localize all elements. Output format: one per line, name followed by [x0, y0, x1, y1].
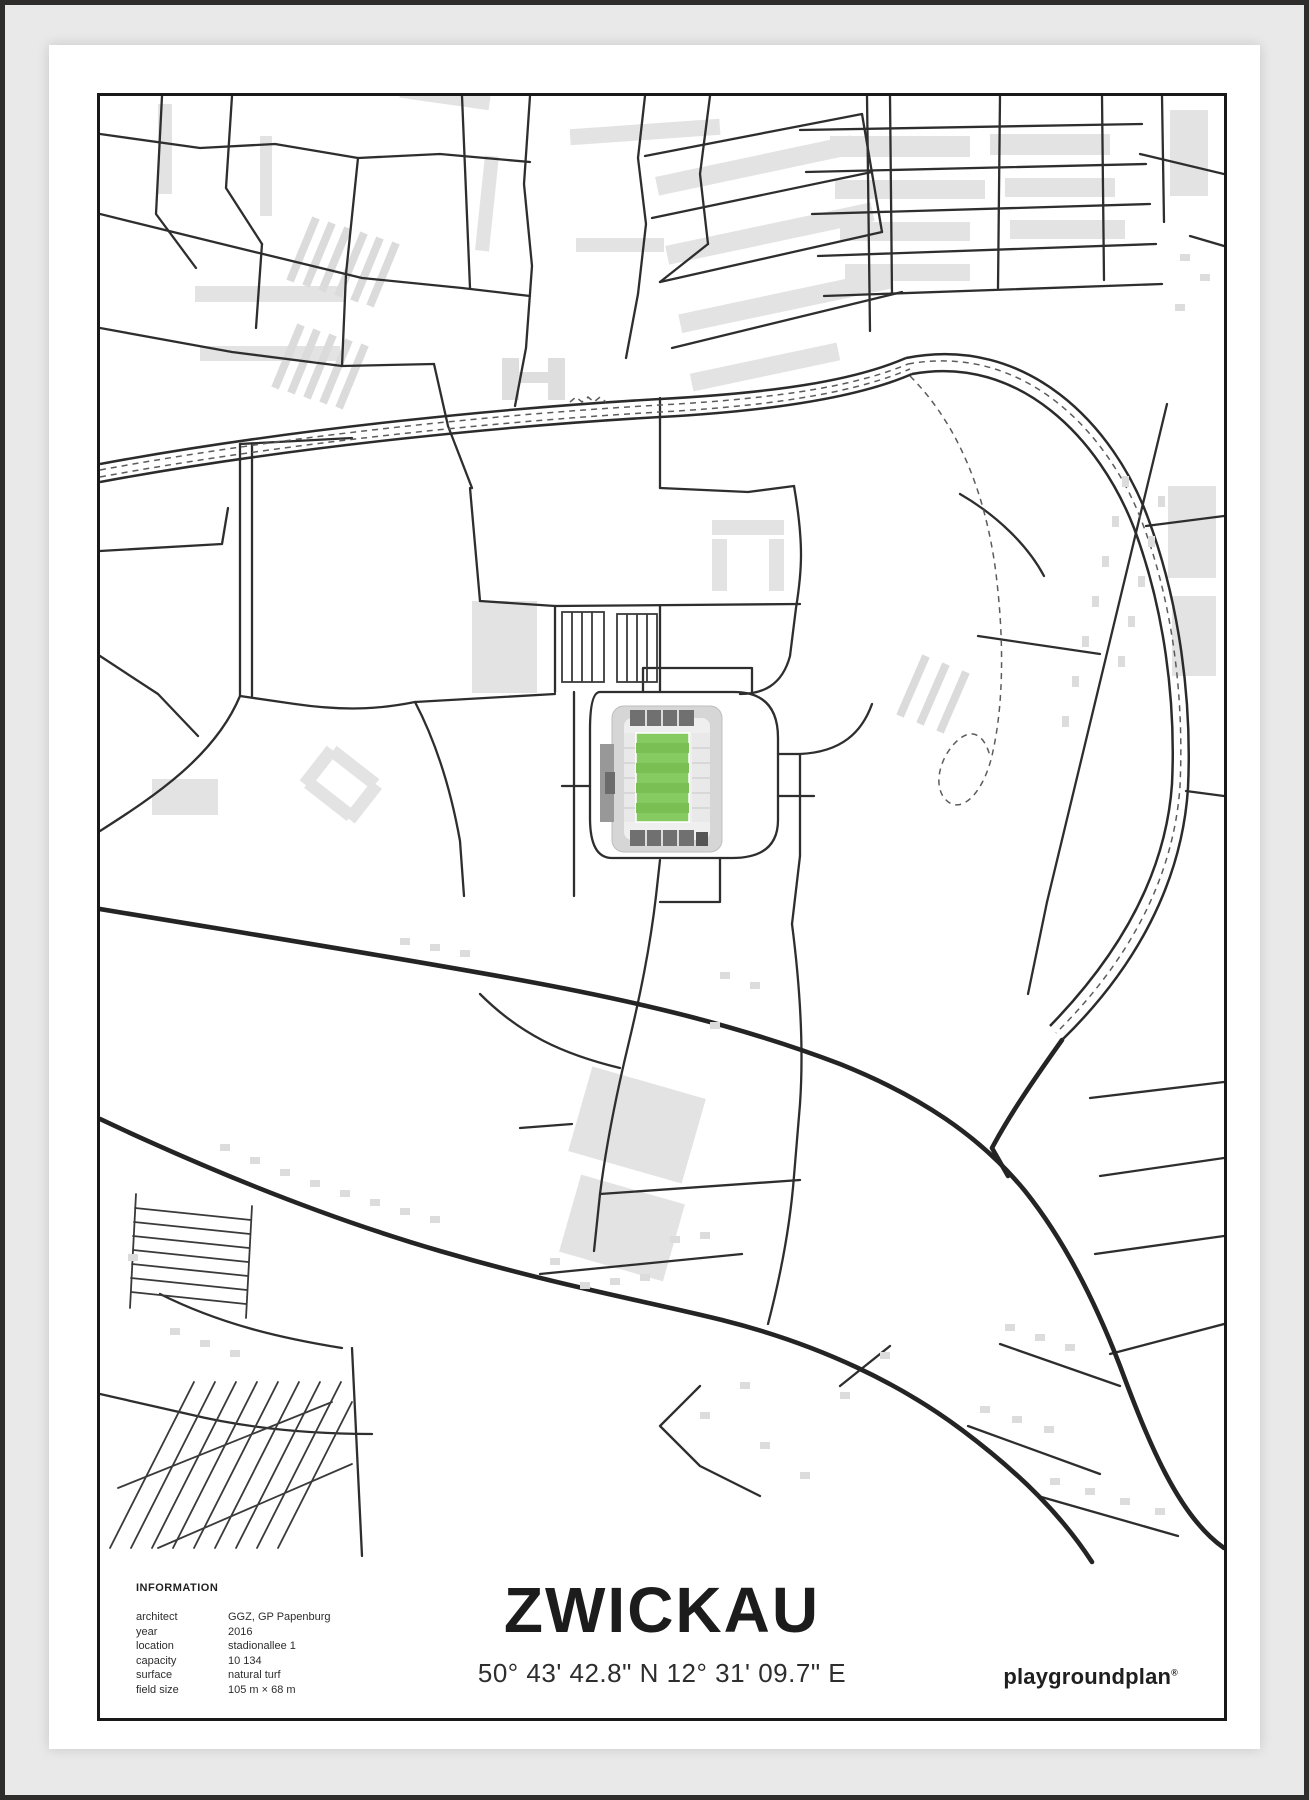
stadium	[600, 706, 722, 852]
brand-logo: playgroundplan®	[1003, 1664, 1178, 1690]
stadium-pitch	[636, 733, 689, 822]
poster-title: ZWICKAU	[100, 1578, 1224, 1642]
caption-area: INFORMATION architect GGZ, GP Papenburg …	[100, 1566, 1224, 1718]
registered-trademark-mark: ®	[1171, 1668, 1178, 1678]
building-footprints	[152, 96, 1216, 1281]
brand-name: playgroundplan	[1003, 1664, 1171, 1689]
bridge-marking	[570, 397, 606, 402]
allotment-comb	[110, 1382, 352, 1548]
h-building	[502, 358, 565, 400]
garage-ladder	[130, 1194, 252, 1318]
poster: INFORMATION architect GGZ, GP Papenburg …	[49, 45, 1260, 1749]
picture-frame: INFORMATION architect GGZ, GP Papenburg …	[0, 0, 1309, 1800]
railway-siding-loop	[910, 376, 1002, 805]
stadium-street-map	[100, 96, 1224, 1566]
map-border: INFORMATION architect GGZ, GP Papenburg …	[97, 93, 1227, 1721]
house-footprints	[128, 254, 1210, 1515]
